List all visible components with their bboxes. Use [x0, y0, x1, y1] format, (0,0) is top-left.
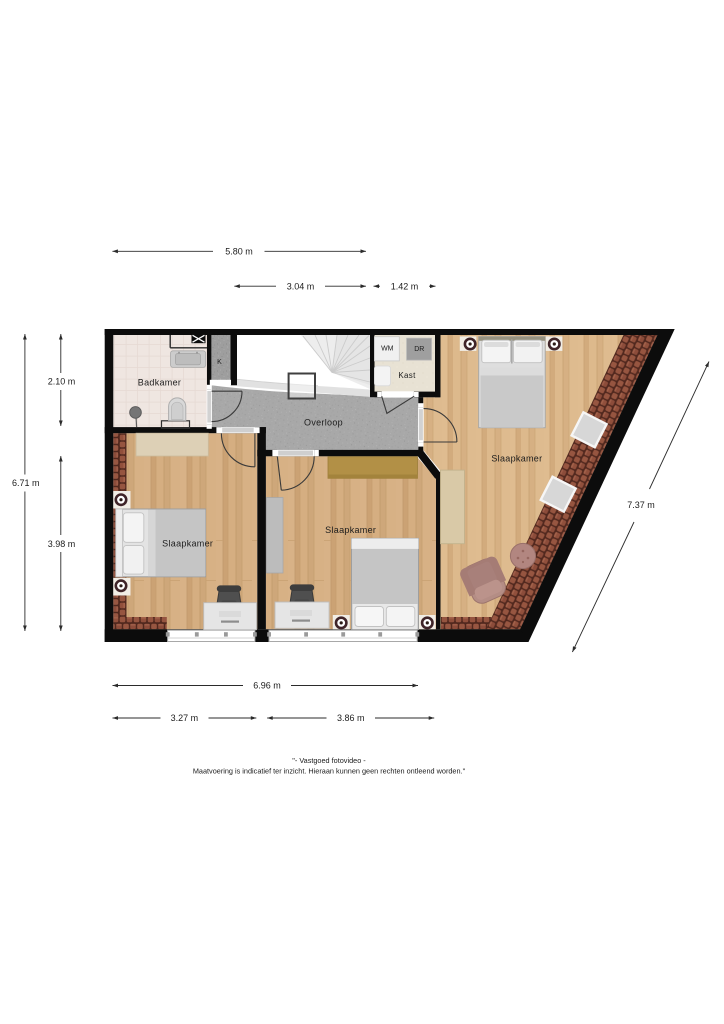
- svg-text:Slaapkamer: Slaapkamer: [491, 453, 542, 463]
- svg-text:2.10 m: 2.10 m: [48, 377, 76, 387]
- svg-text:Overloop: Overloop: [304, 418, 343, 428]
- svg-text:Slaapkamer: Slaapkamer: [325, 525, 376, 535]
- svg-text:7.37 m: 7.37 m: [627, 500, 655, 510]
- svg-text:Badkamer: Badkamer: [138, 377, 181, 387]
- svg-text:Kast: Kast: [398, 371, 416, 380]
- svg-text:DR: DR: [414, 346, 424, 353]
- svg-text:Slaapkamer: Slaapkamer: [162, 539, 213, 549]
- svg-text:3.27 m: 3.27 m: [171, 713, 199, 723]
- svg-text:Maatvoering is indicatief ter: Maatvoering is indicatief ter inzicht. H…: [193, 767, 466, 776]
- svg-text:1.42 m: 1.42 m: [391, 281, 419, 291]
- svg-text:6.96 m: 6.96 m: [253, 681, 281, 691]
- svg-text:WM: WM: [381, 346, 394, 353]
- svg-text:6.71 m: 6.71 m: [12, 478, 40, 488]
- svg-text:3.98 m: 3.98 m: [48, 539, 76, 549]
- svg-text:3.04 m: 3.04 m: [287, 281, 315, 291]
- svg-text:5.80 m: 5.80 m: [225, 247, 253, 257]
- svg-text:3.86 m: 3.86 m: [337, 713, 365, 723]
- svg-text:"- Vastgoed fotovideo -: "- Vastgoed fotovideo -: [292, 756, 366, 765]
- svg-text:K: K: [217, 359, 222, 366]
